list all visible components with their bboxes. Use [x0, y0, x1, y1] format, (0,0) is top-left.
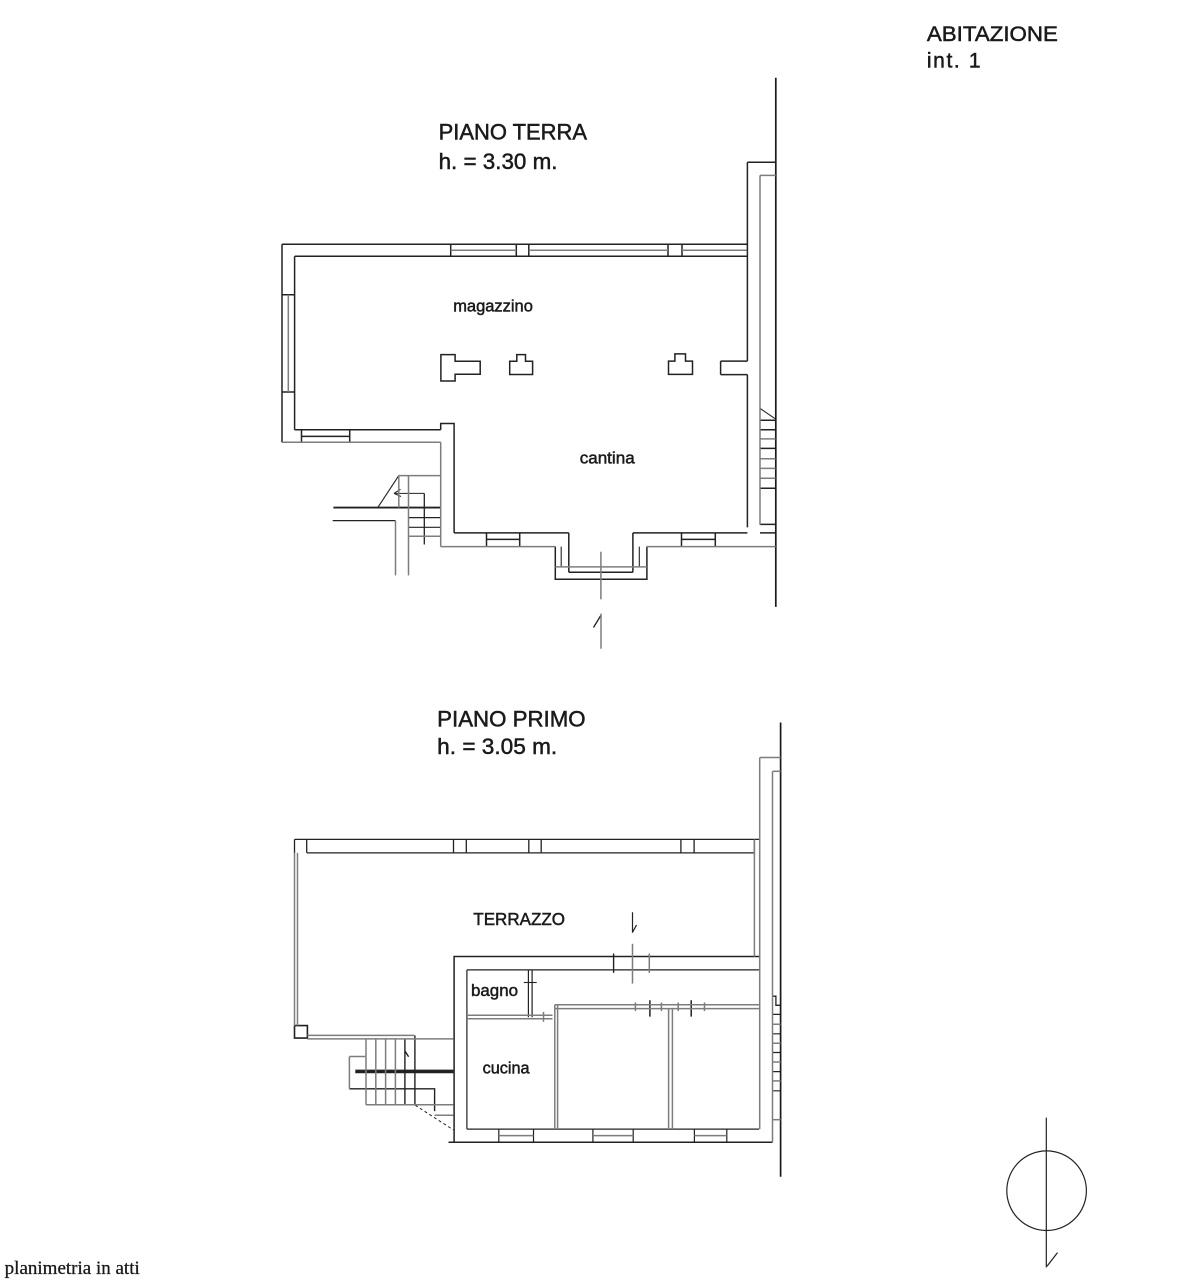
svg-text:a planimetria in atti: a planimetria in atti: [0, 1258, 140, 1279]
svg-text:TERRAZZO: TERRAZZO: [473, 909, 565, 929]
svg-text:PIANO PRIMO: PIANO PRIMO: [437, 707, 585, 732]
svg-text:ABITAZIONE: ABITAZIONE: [927, 23, 1058, 46]
svg-text:h. = 3.05 m.: h. = 3.05 m.: [437, 734, 557, 759]
svg-text:bagno: bagno: [471, 981, 518, 1000]
svg-text:cucina: cucina: [483, 1059, 531, 1078]
svg-text:h. = 3.30 m.: h. = 3.30 m.: [439, 149, 558, 174]
svg-text:cantina: cantina: [580, 449, 636, 468]
svg-text:PIANO TERRA: PIANO TERRA: [439, 119, 588, 144]
svg-text:int. 1: int. 1: [927, 50, 981, 73]
svg-text:magazzino: magazzino: [453, 297, 533, 316]
